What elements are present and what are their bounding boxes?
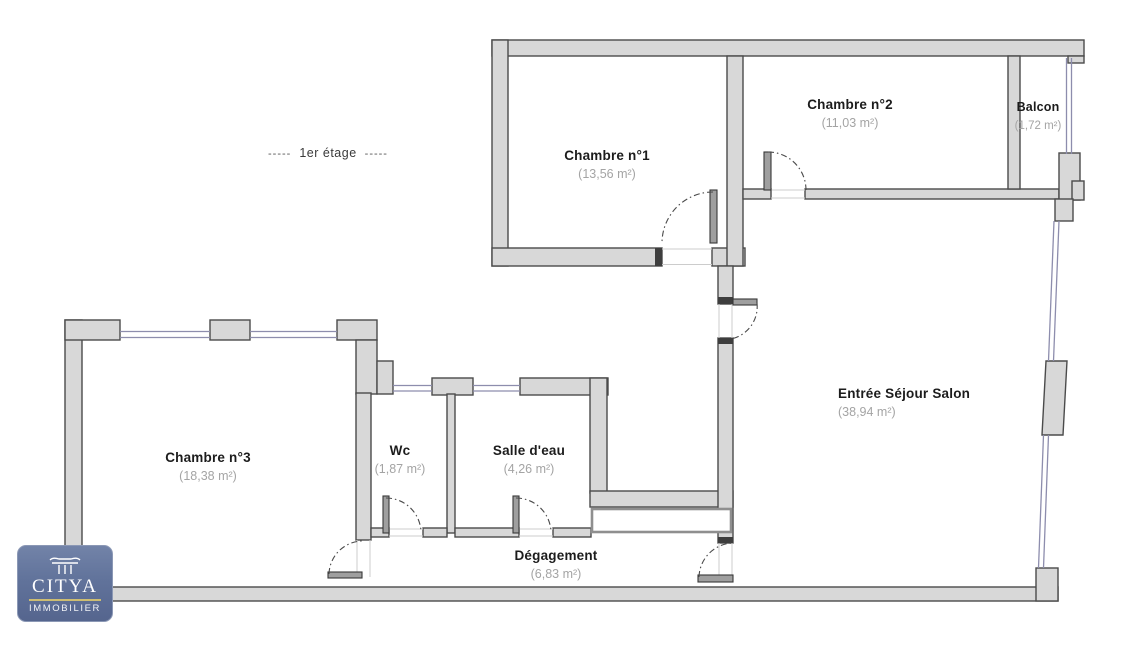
wall-sde-bottom-right <box>553 528 591 537</box>
floor-label-text: 1er étage <box>299 146 356 160</box>
walls <box>65 40 1084 601</box>
window-wc <box>393 386 432 392</box>
wall-right-pier-step <box>1072 181 1084 200</box>
wall-c3-corner-top <box>337 320 377 340</box>
wall-balcon-notch <box>1068 56 1084 63</box>
wall-wc-sde-pier <box>432 378 473 395</box>
window-sejour-upper <box>1049 221 1060 361</box>
floorplan-drawing <box>0 0 1143 649</box>
logo-brand: CITYA <box>32 577 98 597</box>
wall-c3-corner-step <box>377 361 393 394</box>
wall-right-pier-b <box>1055 199 1073 221</box>
floorplan-page: -----1er étage----- Chambre n°1 (13,56 m… <box>0 0 1143 649</box>
logo-subtitle: IMMOBILIER <box>29 603 101 614</box>
floor-label-dashes-right: ----- <box>365 148 388 160</box>
wall-c3-pier-1 <box>65 320 120 340</box>
wall-wc-sde-divider <box>447 394 455 533</box>
door-arc-wc <box>386 498 421 532</box>
citya-logo: CITYA IMMOBILIER <box>17 545 113 622</box>
window-c3-1 <box>120 332 210 338</box>
window-sde <box>473 386 520 392</box>
door-leaf-wc <box>383 496 389 533</box>
wall-c3-right <box>356 393 371 540</box>
wall-bottom-outer <box>65 587 1058 601</box>
wall-top-outer <box>492 40 1084 56</box>
floor-label-dashes-left: ----- <box>268 148 291 160</box>
logo-divider <box>29 599 101 601</box>
wall-c2-bottom-main <box>805 189 1059 199</box>
wall-c1-left <box>492 40 508 266</box>
door-arc-chambre1 <box>662 192 713 243</box>
wall-c3-pier-2 <box>210 320 250 340</box>
door-leaf-sde <box>513 496 519 533</box>
wall-c1-bottom-left <box>492 248 662 266</box>
door-leaf-chambre1 <box>710 190 717 243</box>
window-balcon-railing <box>1067 58 1072 154</box>
door-leaf-entry <box>733 299 757 305</box>
door-arc-entry <box>731 303 757 339</box>
logo-column-icon <box>47 556 83 576</box>
door-arc-chambre2 <box>768 152 806 190</box>
wall-c3-corner-vert <box>356 340 377 394</box>
door-leaf-chambre2 <box>764 152 771 190</box>
wall-wc-bottom-right <box>423 528 447 537</box>
wall-right-window-pier <box>1042 361 1067 435</box>
door-arc-degagement <box>699 543 733 577</box>
floor-label: -----1er étage----- <box>238 146 418 160</box>
window-c3-2 <box>250 332 337 338</box>
wall-sde-bottom-left <box>455 528 519 537</box>
door-leaf-chambre3 <box>328 572 362 578</box>
wall-c2-balcon-divider <box>1008 56 1020 189</box>
wall-c1-c2-divider <box>727 56 743 266</box>
door-arc-sde <box>516 498 551 532</box>
wall-nook-bottom <box>590 491 733 507</box>
window-sejour-lower <box>1039 435 1049 568</box>
closet-outline <box>592 509 731 532</box>
wall-sde-right <box>590 378 607 493</box>
door-leaf-degagement <box>698 575 733 582</box>
wall-sejour-corner-br <box>1036 568 1058 601</box>
